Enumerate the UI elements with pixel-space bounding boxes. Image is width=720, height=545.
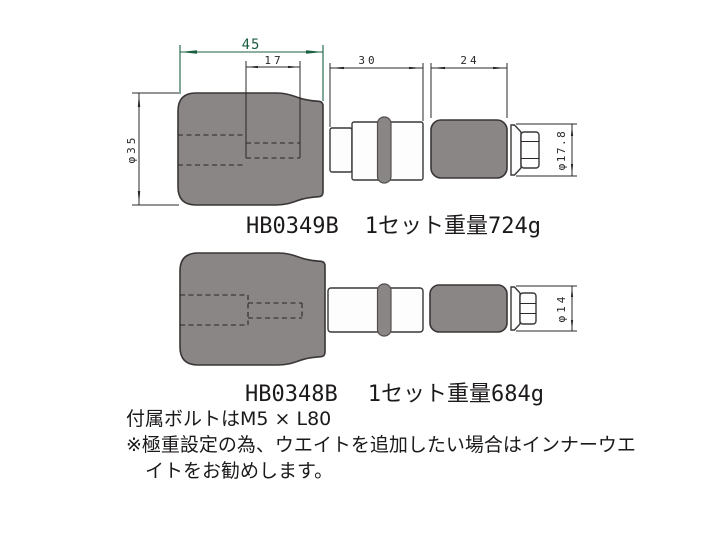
set-weight: 1セット重量684g [368, 376, 544, 408]
dim-24-label: 24 [460, 54, 479, 67]
dim-24-lines [431, 63, 507, 118]
dim-adapter-length: 30 [330, 54, 423, 127]
dim-30-label: 30 [358, 54, 377, 67]
rubber-ring-bottom [378, 284, 392, 336]
dim-17-arrow-left [246, 66, 258, 68]
dim-45-label: 45 [242, 37, 261, 53]
set-weight: 1セット重量724g [365, 208, 541, 240]
dim-17-arrow-right [288, 66, 300, 68]
outer-weight-top [431, 120, 507, 178]
dim-17-label: 17 [264, 54, 283, 67]
model-number: HB0348B [245, 382, 338, 407]
footnotes: 付属ボルトはM5 × L80 ※極重設定の為、ウエイトを追加したい場合はインナー… [126, 406, 636, 484]
dim-phi14-label: φ14 [555, 294, 568, 323]
dim-phi35-lines [132, 93, 179, 205]
product-caption-hb0349b: HB0349B 1セット重量724g [246, 208, 541, 240]
note-warning-line1: ※極重設定の為、ウエイトを追加したい場合はインナーウエ [126, 432, 636, 458]
hb0349b-view: 45 17 30 24 [125, 37, 577, 205]
dim-phi178-arrow-top [571, 124, 573, 136]
technical-drawing-page: 45 17 30 24 [0, 0, 720, 545]
dim-phi178-arrow-bottom [571, 164, 573, 176]
dim-phi178-label: φ17.8 [555, 130, 568, 171]
bolt-flange-bottom [511, 287, 520, 330]
product-caption-hb0348b: HB0348B 1セット重量684g [245, 376, 544, 408]
dim-24-arrow-right [493, 67, 507, 69]
adapter-sleeve-bottom [328, 288, 423, 332]
bolt-hex-head-bottom [520, 293, 536, 324]
dim-30-arrow-right [409, 67, 423, 69]
model-number: HB0349B [246, 214, 339, 239]
dim-phi35-arrow-bottom [138, 191, 140, 205]
adapter-step-top [330, 128, 352, 172]
note-bolt-spec: 付属ボルトはM5 × L80 [126, 406, 636, 432]
dim-phi14-arrow-top [571, 286, 573, 297]
dim-outer-weight-length: 24 [431, 54, 507, 118]
dim-overall-length: 45 [180, 37, 323, 101]
bar-end-body-top [178, 93, 323, 205]
note-warning-line2: イトをお勧めします。 [126, 458, 636, 484]
bolt-hex-head-top [521, 132, 539, 168]
dim-body-diameter: φ35 [125, 93, 179, 205]
dim-phi35-arrow-top [138, 93, 140, 107]
outer-weight-bottom [430, 285, 507, 332]
dim-30-arrow-left [330, 67, 344, 69]
dim-30-lines [330, 63, 423, 127]
dim-phi14-arrow-bottom [571, 320, 573, 331]
dim-45-arrow-left [180, 50, 197, 53]
bar-end-body-bottom [180, 253, 325, 365]
hb0348b-view: φ14 [180, 253, 577, 365]
rubber-ring-top [378, 117, 392, 183]
dim-phi35-label: φ35 [125, 135, 138, 164]
bolt-flange-top [511, 125, 521, 175]
dim-45-arrow-right [306, 50, 323, 53]
dim-24-arrow-left [431, 67, 445, 69]
